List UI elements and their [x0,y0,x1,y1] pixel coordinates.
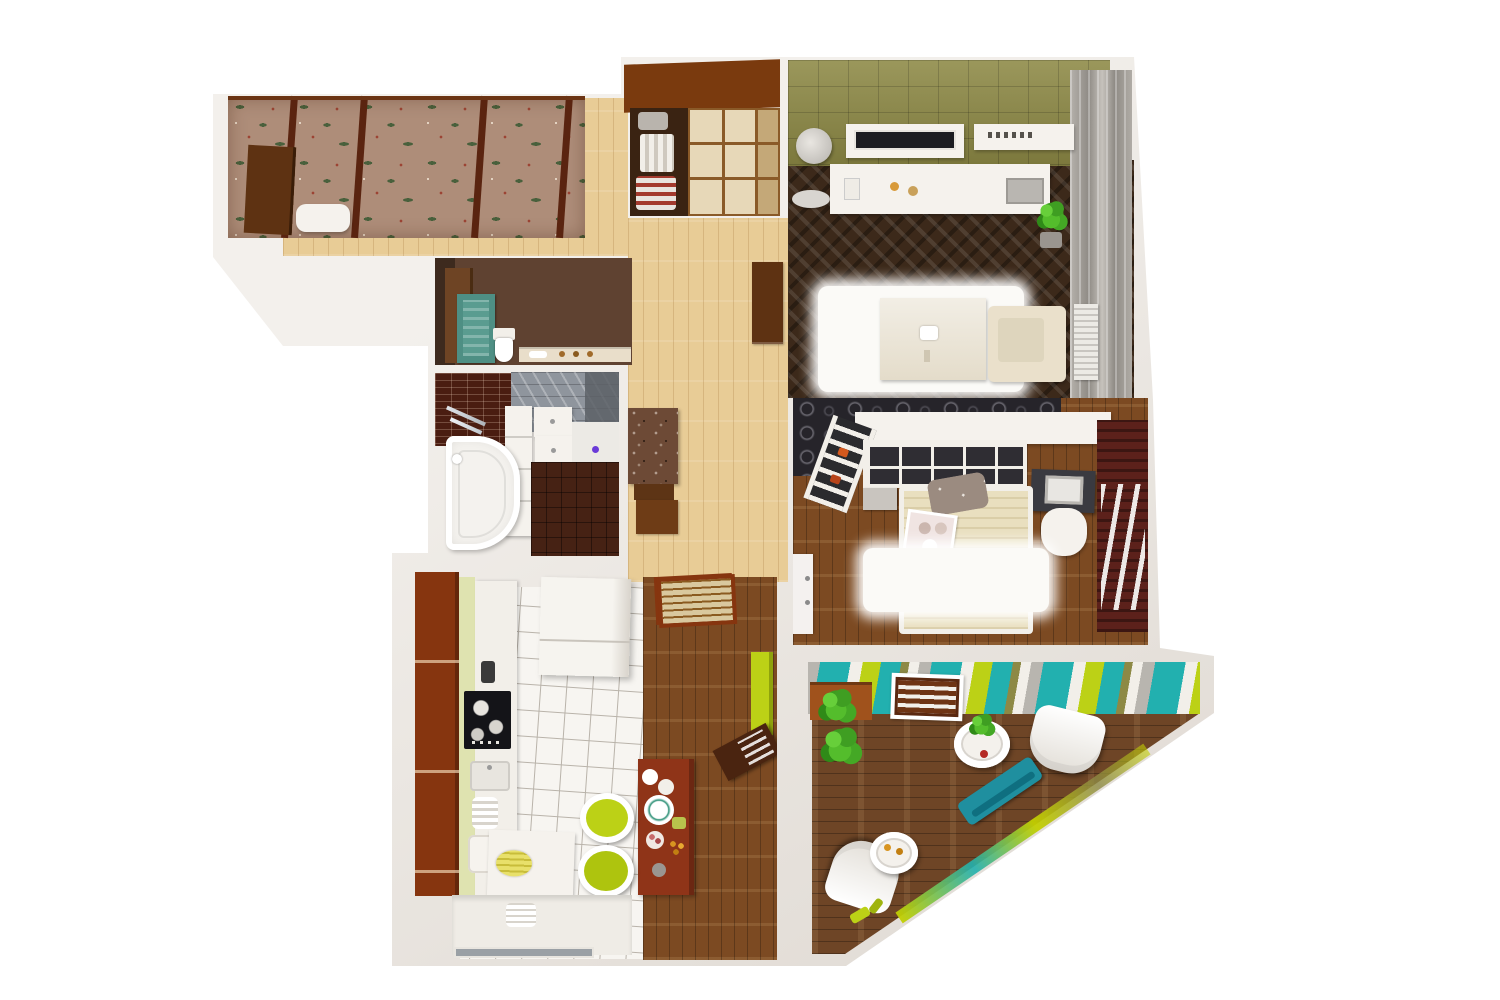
terrace-plant-1 [814,686,860,726]
amber-cup [884,844,891,851]
terrace-door [890,673,964,721]
magazine [844,178,860,200]
door-handle [805,600,810,605]
towel [529,351,547,358]
vanity-sink-1 [534,407,572,437]
console-table-front [634,484,674,500]
faucet [487,765,492,770]
kitchen-window [454,947,594,958]
living-room [788,60,1134,398]
teal-cabinet-front [463,300,489,356]
terrace [806,660,1218,962]
green-chair-1 [580,793,634,843]
wardrobe-panel [725,180,755,214]
towel-basket [472,797,498,829]
cup [918,521,932,535]
wall-ring [452,454,462,464]
table-plant [966,712,998,738]
burner [470,727,485,742]
tall-cabinet-column [415,572,459,896]
tea-spoon [924,350,930,362]
canopy-frame-edge [228,96,585,100]
armchair-seat [998,318,1044,362]
green-cabinet [751,652,773,735]
wardrobe-panel-taupe [758,145,778,177]
jar [587,351,593,357]
faucet [550,419,555,424]
monitor [1045,475,1084,504]
plant-pot [1040,232,1062,248]
wc-shelf [519,347,631,362]
cabinet-divider [415,660,459,663]
soap-dish [592,446,599,453]
wardrobe-panel [690,110,722,142]
hat-box [638,112,668,130]
floor-plan-stage [0,0,1500,1000]
bathtub-basin [458,450,506,538]
sink [470,761,510,791]
small-round-table [870,832,918,874]
pot [472,699,490,717]
butter-dish [672,817,686,829]
hall-kitchen-door [657,574,738,628]
fur-rug [863,548,1049,612]
door-handle [805,576,810,581]
fridge-door-line [540,639,630,643]
wardrobe-panel [690,145,722,177]
radiator [1074,304,1098,380]
shelf-items [988,132,1034,138]
hall-chest [636,500,678,534]
bedside-unit [863,488,897,510]
green-rim-plate [644,795,674,825]
bathroom [435,370,622,558]
desk [1030,469,1095,513]
bottom-counter [452,895,632,955]
small-plate [642,769,658,785]
gas-hob [464,691,511,749]
wardrobe-panel [725,110,755,142]
dark-tile-floor [531,462,619,556]
small-plate [658,779,674,795]
wall-shelf [974,124,1074,150]
tv-console [846,124,964,158]
green-chair-2 [578,845,634,897]
maroon-wardrobe [1097,420,1148,632]
floor-lamp-shade [796,128,832,164]
shelf-line [505,436,532,438]
loggia-bench [296,204,350,232]
amber-cup [896,848,903,855]
wardrobe-shelves [1101,484,1145,610]
floor-lamp-base [792,190,830,208]
desk-chair [1041,508,1087,556]
wardrobe-sliding-panels [688,108,780,216]
corner-armchair [988,306,1066,382]
folded-linens [636,176,676,210]
platform-daybed [880,298,986,380]
jar [573,351,579,357]
wardrobe-panel-taupe [758,110,778,142]
wardrobe-panel-taupe [758,180,778,214]
gray-bowl [652,863,666,877]
hall-tall-cabinet [752,262,783,344]
terrace-plant-2 [816,724,866,768]
terrace-door-slats [894,677,959,717]
round-side-table [954,720,1010,768]
red-cup [980,750,988,758]
cabinet-divider [415,770,459,773]
coffee-maker [481,661,495,683]
dining-table [638,759,694,895]
sideboard [830,164,1050,214]
wardrobe-panel [725,145,755,177]
dessert-plate [646,831,664,849]
hanging-clothes [640,134,674,172]
potted-plant [1034,198,1070,234]
loggia-door [244,145,297,235]
wardrobe-open-section [630,108,688,216]
plate [890,182,899,191]
vanity-counter [572,422,619,462]
wc-room [435,258,632,365]
fridge [539,577,632,677]
hallway-floor-top [583,98,628,232]
prep-table [487,830,575,899]
wardrobe-top [624,59,780,112]
pot [488,719,504,735]
plate [908,186,918,196]
plate-stack [496,850,533,877]
tv-screen [854,130,956,150]
jar [559,351,565,357]
cabinet-divider [415,870,459,873]
laptop [1006,178,1044,204]
toilet [495,338,513,362]
teal-cabinet [457,294,495,363]
wardrobe-panel [690,180,722,214]
cup [934,522,948,536]
hob-knobs [472,741,502,744]
dish-rack [506,903,536,927]
fruit [668,839,688,857]
console-table [628,408,678,484]
bedroom-door [793,554,813,634]
bedroom [793,398,1148,645]
faucet [551,448,556,453]
tea-set [920,326,938,340]
